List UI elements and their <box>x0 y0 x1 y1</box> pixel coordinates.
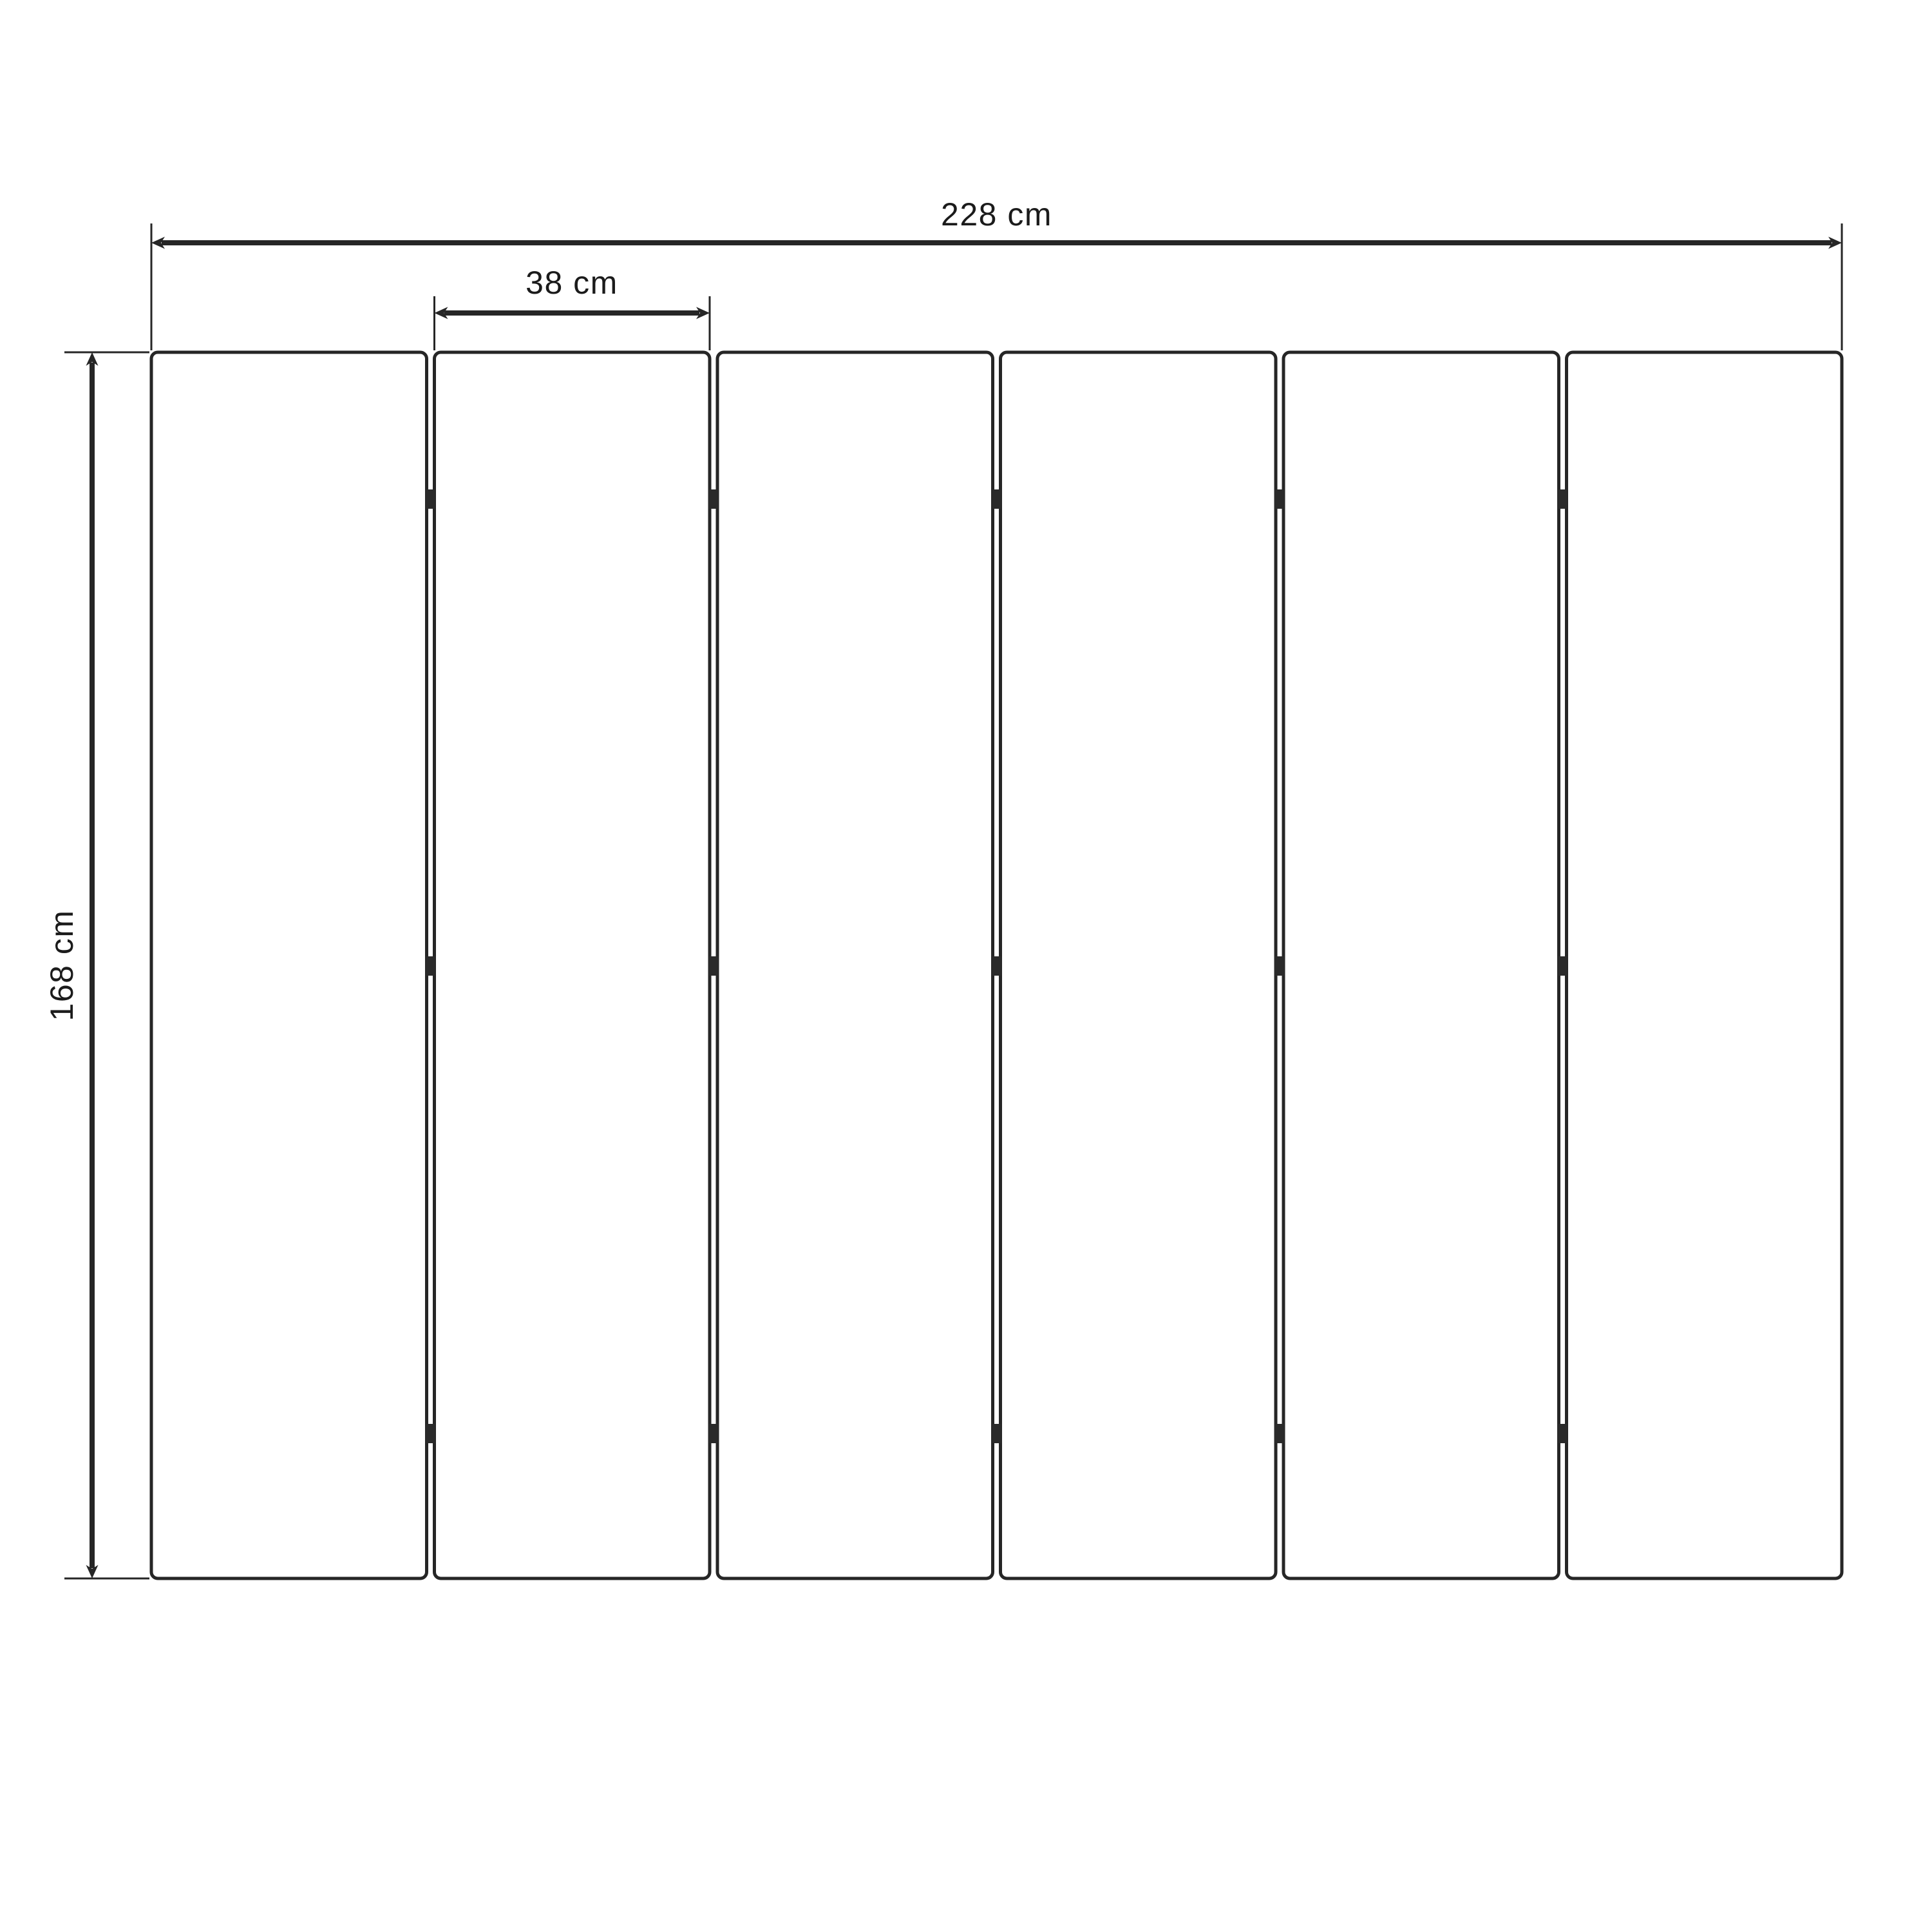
panel-width-label: 38 cm <box>526 265 618 301</box>
hinge <box>1275 1424 1285 1443</box>
panel-3 <box>717 352 993 1578</box>
hinge <box>1275 956 1285 976</box>
hinge <box>1558 956 1567 976</box>
hinge <box>709 489 719 509</box>
height-label: 168 cm <box>44 910 80 1021</box>
hinge <box>709 1424 719 1443</box>
hinge <box>1558 489 1567 509</box>
total-width-label: 228 cm <box>941 196 1052 232</box>
panel-1 <box>151 352 427 1578</box>
dimension-panel-width: 38 cm <box>435 265 710 350</box>
hinge <box>992 1424 1001 1443</box>
panel-5 <box>1283 352 1559 1578</box>
panel-dimension-diagram: 228 cm 38 cm 168 cm <box>0 0 1932 1932</box>
panel-6 <box>1567 352 1842 1578</box>
hinge <box>992 489 1001 509</box>
panel-2 <box>435 352 710 1578</box>
hinge <box>426 1424 435 1443</box>
hinge <box>709 956 719 976</box>
hinge <box>426 956 435 976</box>
dimension-total-width: 228 cm <box>151 196 1842 350</box>
hinge <box>1558 1424 1567 1443</box>
panel-4 <box>1001 352 1276 1578</box>
hinge <box>992 956 1001 976</box>
hinge <box>1275 489 1285 509</box>
dimension-height: 168 cm <box>44 352 149 1578</box>
hinge <box>426 489 435 509</box>
dimension-drawing-svg: 228 cm 38 cm 168 cm <box>0 0 1932 1932</box>
